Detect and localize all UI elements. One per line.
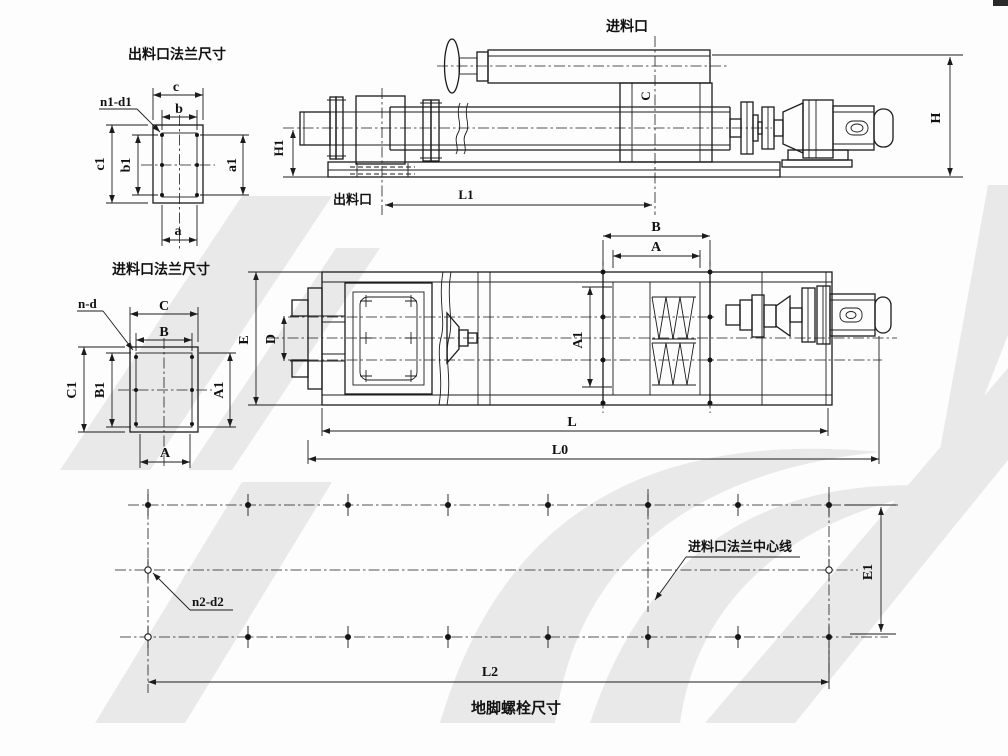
outlet-flange-view: 出料口法兰尺寸 c b c1 b1 a1 a n1- <box>93 46 249 250</box>
dim-label-C-side: C <box>638 91 653 100</box>
break-line <box>456 103 460 154</box>
break-line <box>439 272 443 405</box>
outlet-port-label: 出料口 <box>333 192 372 207</box>
dim-label-D: D <box>264 334 279 344</box>
motor-side <box>833 106 893 150</box>
dim-label-c1: c1 <box>93 157 108 170</box>
dim-label-H: H <box>929 112 944 123</box>
dim-label-B1: B1 <box>93 382 108 398</box>
foundation-plan-title: 地脚螺栓尺寸 <box>471 699 561 717</box>
inlet-bolt-callout: n-d <box>78 296 98 311</box>
scan-artifact <box>993 0 1008 6</box>
technical-drawing-page: 出料口法兰尺寸 c b c1 b1 a1 a n1- <box>0 0 1008 756</box>
inlet-port-label: 进料口 <box>606 18 648 34</box>
housing-bolt-marks <box>360 295 417 382</box>
break-line <box>464 103 468 154</box>
dim-label-L2: L2 <box>482 665 498 680</box>
dim-label-E1: E1 <box>861 564 876 580</box>
outlet-bolt-callout: n1-d1 <box>100 94 132 109</box>
machine-base <box>328 162 963 177</box>
dim-label-b: b <box>175 102 183 117</box>
foundation-bolt-callout: n2-d2 <box>192 594 224 609</box>
screw-springs <box>652 297 696 385</box>
dim-label-A1-plan: A1 <box>571 331 586 348</box>
dim-label-L: L <box>567 415 576 430</box>
outlet-flange-title: 出料口法兰尺寸 <box>128 46 226 62</box>
dim-label-L1: L1 <box>458 187 473 202</box>
dim-label-A-plan: A <box>651 240 662 255</box>
inlet-flange-title: 进料口法兰尺寸 <box>112 261 210 277</box>
inlet-box-plan <box>601 261 713 413</box>
dim-label-B-plan: B <box>651 220 660 235</box>
watermark-logo <box>60 0 1008 723</box>
machine-barrel <box>300 103 730 154</box>
dim-label-C1: C1 <box>65 381 80 398</box>
drawing-canvas: 出料口法兰尺寸 c b c1 b1 a1 a n1- <box>0 0 1008 756</box>
dim-label-A1-flange: A1 <box>212 381 227 398</box>
motor-plan <box>830 294 891 336</box>
dim-label-a1: a1 <box>225 158 240 172</box>
dim-label-b1: b1 <box>119 158 134 173</box>
dim-label-c: c <box>173 80 179 95</box>
dim-label-E: E <box>237 335 252 344</box>
dim-label-L0: L0 <box>552 443 568 458</box>
drive-train-plan <box>726 286 891 344</box>
dim-label-a: a <box>175 224 182 239</box>
inlet-flange-centerline-label: 进料口法兰中心线 <box>688 539 792 554</box>
dim-label-A-flange: A <box>160 446 171 461</box>
side-elevation-view: 进料口 C <box>271 18 963 215</box>
outlet-end-assembly <box>300 96 442 164</box>
dim-label-H1: H1 <box>271 140 286 157</box>
drive-train-side <box>730 100 893 167</box>
dim-label-B: B <box>159 325 168 340</box>
dim-label-C: C <box>159 299 169 314</box>
